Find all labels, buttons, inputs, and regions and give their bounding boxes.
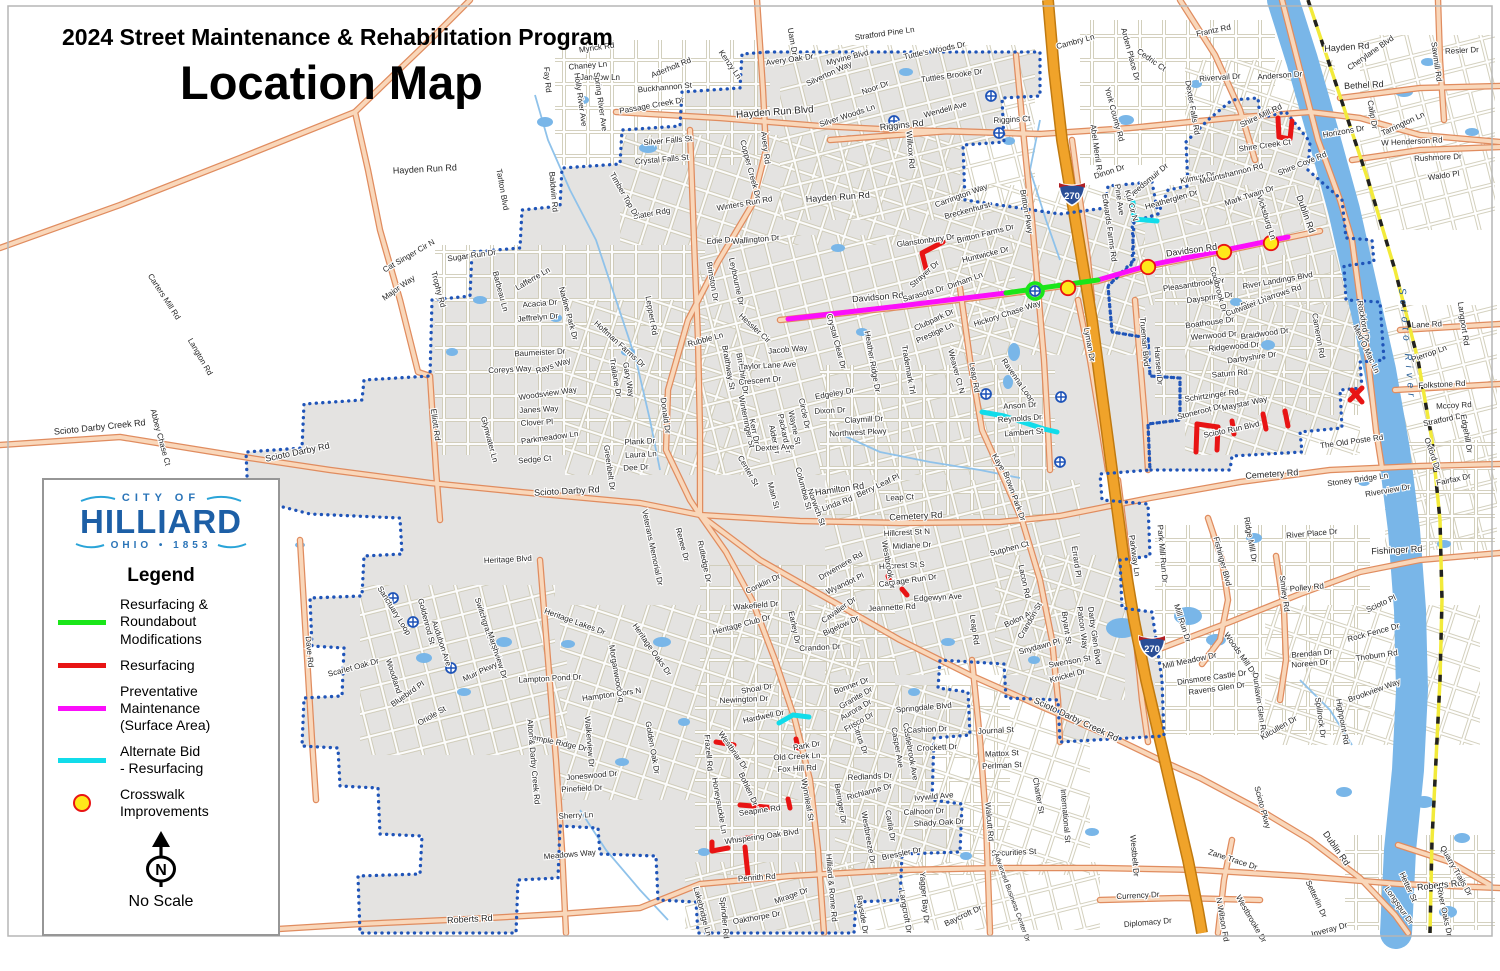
legend-swatch-line	[58, 620, 106, 625]
roundabout-marker-icon	[1055, 457, 1065, 467]
pond	[960, 852, 972, 860]
street-label: Clover Pl	[520, 417, 553, 428]
pond	[941, 638, 955, 646]
pond	[473, 296, 487, 304]
program-line-red	[788, 799, 790, 808]
program-line-red	[745, 847, 748, 876]
pond	[1414, 796, 1434, 808]
pond	[1402, 688, 1418, 712]
legend-item-preventative: PreventativeMaintenance(Surface Area)	[56, 683, 278, 734]
pond	[1454, 833, 1470, 843]
pond	[537, 117, 553, 127]
street-label: Laura Ln	[625, 449, 657, 460]
pond	[1008, 343, 1020, 361]
crosswalk-marker-icon	[1141, 260, 1155, 274]
legend-items: Resurfacing &RoundaboutModificationsResu…	[44, 596, 278, 820]
map-page: 270270Myrick RdChaney LnJanklow LnAderho…	[0, 0, 1500, 971]
pond	[416, 653, 432, 663]
pond	[678, 718, 690, 726]
legend-panel: CITY OF HILLIARD OHIO • 1853 Legend Resu…	[42, 478, 280, 936]
legend-item-resurfacing-roundabout: Resurfacing &RoundaboutModifications	[56, 596, 278, 647]
crosswalk-marker-icon	[1217, 245, 1231, 259]
pond	[1028, 656, 1040, 664]
program-line-red	[1263, 414, 1266, 429]
pond	[899, 68, 913, 76]
legend-swatch-circle	[73, 794, 91, 812]
legend-swatch-line	[58, 758, 106, 763]
pond	[1085, 828, 1099, 836]
legend-title: Legend	[44, 565, 278, 587]
street-label: Resler Dr	[1445, 45, 1480, 56]
pond	[457, 688, 471, 696]
pond	[561, 640, 575, 648]
interstate-shield-number: 270	[1144, 644, 1160, 655]
program-line-red	[1196, 424, 1197, 452]
legend-item-label: Resurfacing &RoundaboutModifications	[120, 596, 208, 647]
pond	[908, 688, 920, 696]
legend-item-label: CrosswalkImprovements	[120, 786, 209, 820]
street-label: Lane Rd	[1412, 319, 1443, 330]
logo-name: HILLIARD	[44, 504, 278, 540]
roundabout-marker-icon	[1056, 392, 1066, 402]
street-label: Sherry Ln	[558, 810, 593, 821]
pond	[615, 758, 629, 766]
program-line-red	[1197, 424, 1218, 427]
pond	[1336, 787, 1352, 797]
roundabout-marker-icon	[981, 389, 991, 399]
pond	[1261, 340, 1275, 350]
street-label: Dixon Dr	[814, 405, 846, 416]
legend-item-label: PreventativeMaintenance(Surface Area)	[120, 683, 210, 734]
legend-item-label: Alternate Bid- Resurfacing	[120, 743, 203, 777]
north-label: N	[155, 862, 167, 879]
logo-flourish-icon	[217, 541, 247, 551]
hilliard-logo: CITY OF HILLIARD OHIO • 1853	[44, 492, 278, 551]
street-label: Mattox St	[985, 748, 1020, 759]
legend-item-crosswalk: CrosswalkImprovements	[56, 786, 278, 820]
logo-flourish-icon	[80, 493, 116, 503]
pond	[446, 348, 458, 356]
pond	[831, 244, 845, 252]
legend-item-resurfacing: Resurfacing	[56, 657, 278, 674]
logo-flourish-icon	[75, 541, 105, 551]
street-label: Mccoy Rd	[1436, 400, 1472, 411]
program-line-red	[1285, 411, 1288, 426]
legend-swatch-line	[58, 706, 106, 711]
logo-tagline: OHIO • 1853	[111, 540, 212, 551]
roundabout-marker-icon	[986, 91, 996, 101]
street-label: Plank Dr	[624, 436, 655, 447]
residential-streets	[1265, 605, 1480, 745]
pond	[1465, 128, 1479, 136]
logo-flourish-icon	[206, 493, 242, 503]
crosswalk-marker-icon	[1061, 281, 1075, 295]
legend-swatch-line	[58, 663, 106, 668]
north-arrow-icon: N	[44, 829, 278, 891]
roundabout-marker-icon	[1030, 286, 1040, 296]
street-label: Dee Dr	[623, 462, 649, 472]
legend-item-label: Resurfacing	[120, 657, 195, 674]
street-label: Leap Ct	[886, 492, 915, 502]
street-label: Journal St	[978, 725, 1015, 736]
legend-item-alternate-bid: Alternate Bid- Resurfacing	[56, 743, 278, 777]
roundabout-marker-icon	[994, 128, 1004, 138]
pond	[698, 848, 710, 856]
scale-note: No Scale	[44, 893, 278, 911]
interstate-shield-number: 270	[1064, 191, 1080, 202]
street-label: Bethel Rd	[1344, 79, 1384, 91]
